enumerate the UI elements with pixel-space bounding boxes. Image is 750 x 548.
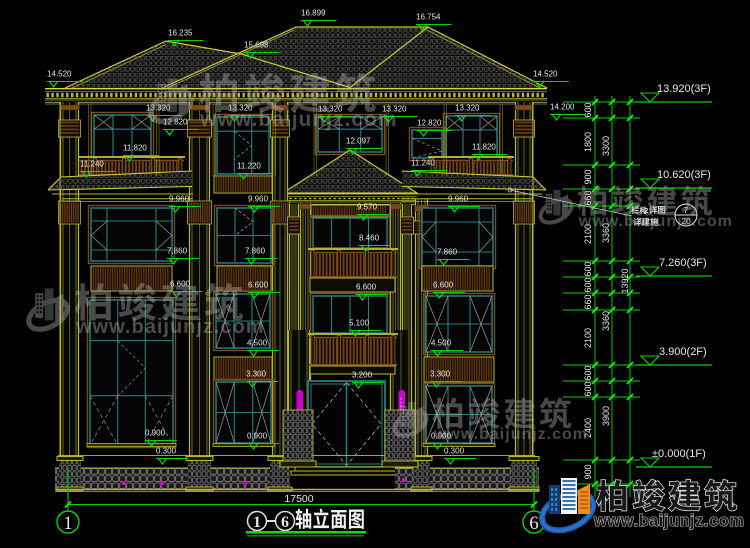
svg-text:6: 6 <box>281 514 289 531</box>
svg-text:1: 1 <box>63 513 73 534</box>
svg-text:www.baijunjz.com: www.baijunjz.com <box>593 512 744 530</box>
svg-text:3360: 3360 <box>601 311 611 331</box>
svg-text:600: 600 <box>583 102 593 117</box>
svg-text:9.570: 9.570 <box>357 203 378 212</box>
svg-text:11.820: 11.820 <box>472 143 496 152</box>
svg-text:www.baijunjz.com: www.baijunjz.com <box>578 213 733 230</box>
svg-text:9.960: 9.960 <box>248 195 269 204</box>
svg-text:7.860: 7.860 <box>245 247 266 256</box>
svg-text:13.920(3F): 13.920(3F) <box>657 83 711 95</box>
svg-text:3300: 3300 <box>601 136 611 156</box>
svg-text:6: 6 <box>529 513 539 534</box>
svg-text:12.097: 12.097 <box>346 137 371 146</box>
svg-text:0.300: 0.300 <box>444 447 465 456</box>
svg-text:9.960: 9.960 <box>169 195 190 204</box>
svg-text:660: 660 <box>583 294 593 309</box>
svg-text:3.900(2F): 3.900(2F) <box>659 346 707 358</box>
svg-text:600: 600 <box>583 381 593 396</box>
svg-text:www.baijunjz.com: www.baijunjz.com <box>199 108 397 131</box>
svg-text:3900: 3900 <box>601 406 611 426</box>
svg-text:3.300: 3.300 <box>430 370 451 379</box>
svg-text:4.500: 4.500 <box>431 339 452 348</box>
svg-text:900: 900 <box>583 464 593 479</box>
svg-text:4.500: 4.500 <box>247 339 268 348</box>
svg-text:16.754: 16.754 <box>416 13 441 22</box>
svg-text:14.520: 14.520 <box>533 70 558 79</box>
svg-text:2100: 2100 <box>583 328 593 348</box>
svg-text:11.220: 11.220 <box>237 162 261 171</box>
svg-text:3.200: 3.200 <box>352 371 373 380</box>
svg-text:13920: 13920 <box>620 268 630 293</box>
svg-text:11.240: 11.240 <box>80 160 104 169</box>
svg-text:11.240: 11.240 <box>411 159 435 168</box>
svg-text:9.960: 9.960 <box>448 195 469 204</box>
svg-text:1: 1 <box>253 514 261 531</box>
svg-text:0.300: 0.300 <box>156 447 177 456</box>
svg-text:7.860: 7.860 <box>167 247 188 256</box>
svg-text:600: 600 <box>583 365 593 380</box>
svg-text:16.899: 16.899 <box>301 9 326 18</box>
svg-text:8.460: 8.460 <box>359 234 380 243</box>
svg-text:5.100: 5.100 <box>349 319 370 328</box>
svg-text:10.620(3F): 10.620(3F) <box>657 169 711 181</box>
svg-text:0.900: 0.900 <box>145 429 166 438</box>
svg-text:13.320: 13.320 <box>455 104 480 113</box>
svg-text:15.698: 15.698 <box>244 41 269 50</box>
svg-text:0.900: 0.900 <box>247 432 268 441</box>
svg-text:6.600: 6.600 <box>433 281 454 290</box>
svg-text:±0.000(1F): ±0.000(1F) <box>652 448 706 460</box>
svg-text:600: 600 <box>583 261 593 276</box>
svg-text:1800: 1800 <box>583 132 593 152</box>
svg-text:3.300: 3.300 <box>246 370 267 379</box>
svg-text:7.860: 7.860 <box>437 248 458 257</box>
svg-text:14.200: 14.200 <box>550 103 575 112</box>
svg-text:11.820: 11.820 <box>123 144 147 153</box>
svg-text:6.600: 6.600 <box>248 281 269 290</box>
svg-text:7.260(3F): 7.260(3F) <box>659 257 707 269</box>
svg-text:14.520: 14.520 <box>47 70 72 79</box>
svg-text:12.820: 12.820 <box>417 119 442 128</box>
svg-text:16.235: 16.235 <box>168 29 193 38</box>
svg-text:900: 900 <box>583 169 593 184</box>
svg-text:600: 600 <box>583 277 593 292</box>
svg-text:www.baijunjz.com: www.baijunjz.com <box>433 426 588 443</box>
svg-text:www.baijunjz.com: www.baijunjz.com <box>75 316 265 338</box>
svg-text:6.600: 6.600 <box>356 283 377 292</box>
svg-text:17500: 17500 <box>284 493 313 505</box>
